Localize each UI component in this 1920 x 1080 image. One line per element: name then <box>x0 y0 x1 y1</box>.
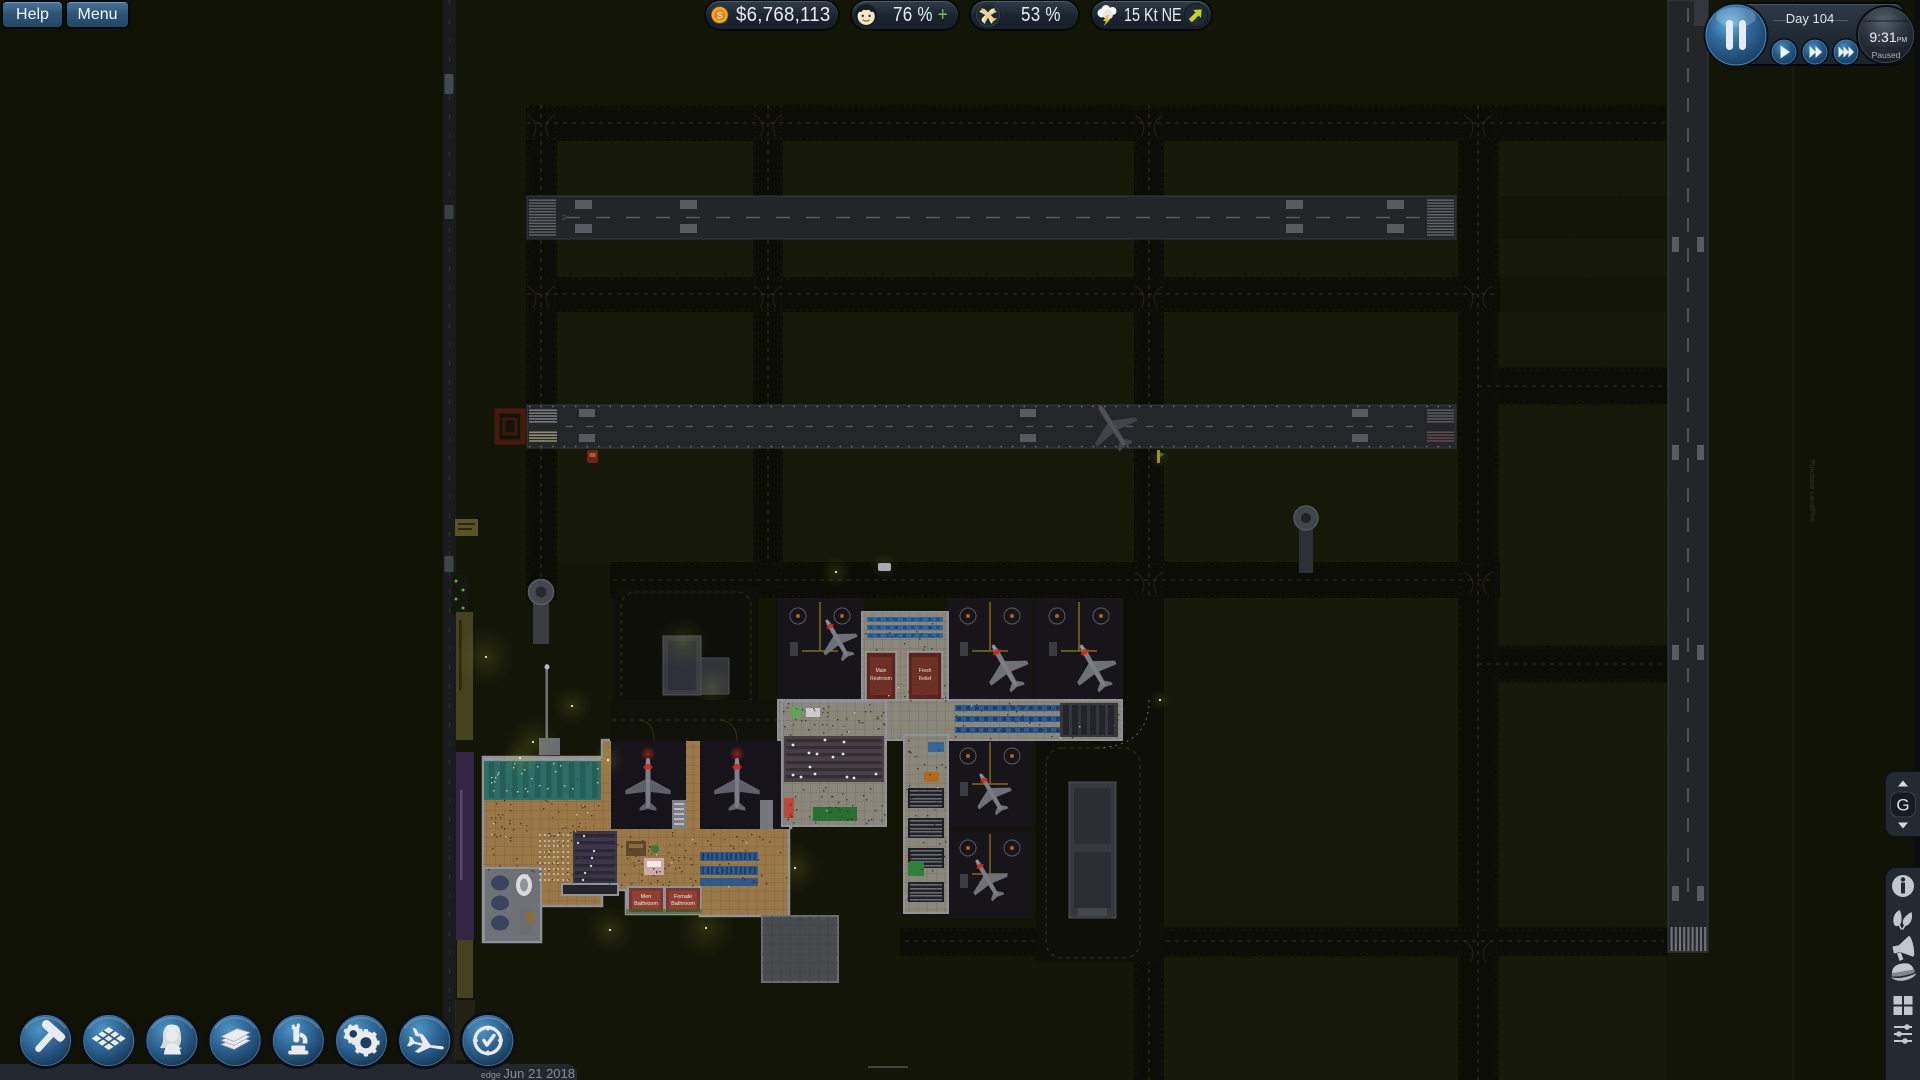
svg-text:Fresh: Fresh <box>919 668 932 674</box>
svg-text:Bathroom: Bathroom <box>634 901 658 907</box>
svg-text:Paused: Paused <box>1872 50 1901 60</box>
svg-text:Female: Female <box>674 894 692 900</box>
svg-text:Male: Male <box>876 668 887 674</box>
svg-text:Relief: Relief <box>919 676 932 682</box>
svg-text:2: 2 <box>562 215 566 222</box>
svg-text:G: G <box>1896 796 1909 815</box>
svg-text:Restroom: Restroom <box>870 676 892 682</box>
svg-text:S: S <box>717 10 723 20</box>
svg-text:Men: Men <box>641 894 652 900</box>
svg-text:9:31: 9:31 <box>1869 29 1896 45</box>
svg-text:PM: PM <box>1897 37 1908 44</box>
